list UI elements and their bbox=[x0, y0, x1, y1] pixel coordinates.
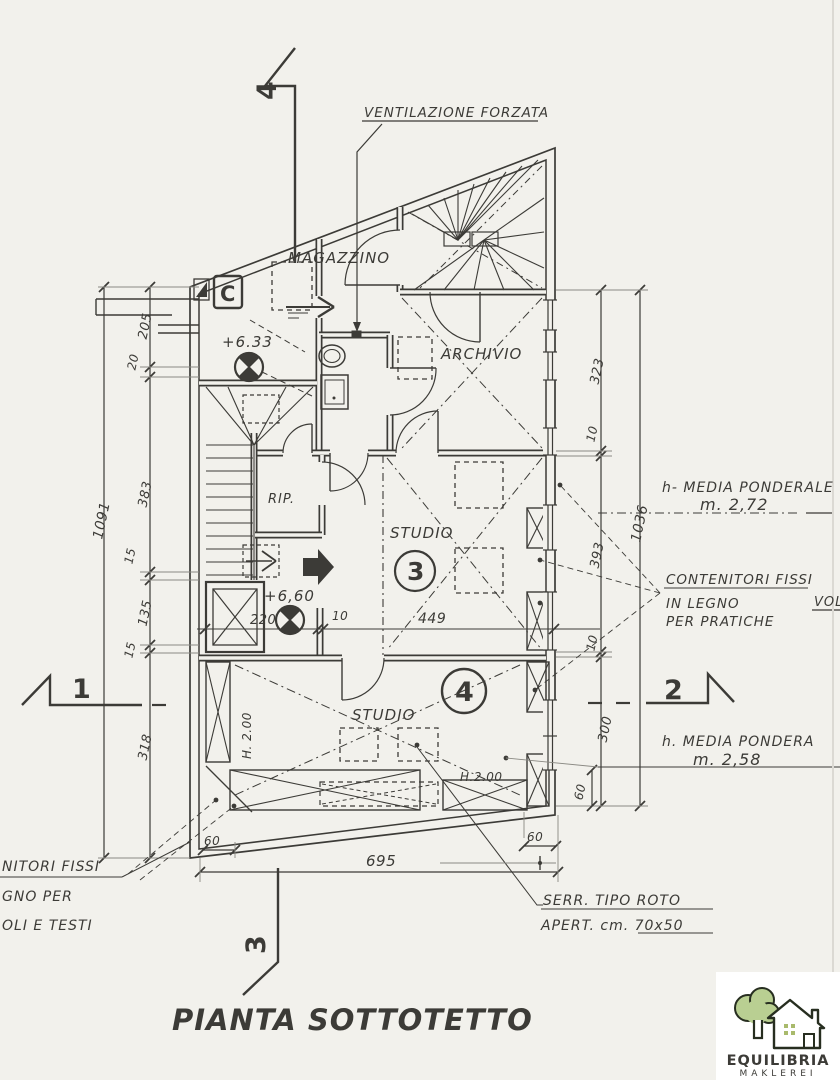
dim-right-323: 323 bbox=[588, 357, 608, 386]
annotation-skylight-1: SERR. TIPO ROTO bbox=[543, 893, 681, 909]
logo-block: EQUILIBRIA MAKLEREI bbox=[716, 972, 840, 1080]
section-marker-2: 2 bbox=[664, 675, 683, 706]
dim-right-10a: 10 bbox=[583, 424, 600, 443]
room-label-rip: RIP. bbox=[268, 492, 295, 507]
dim-right-total: 1036 bbox=[628, 503, 651, 543]
room-label-studio-4: STUDIO bbox=[352, 706, 415, 724]
annotation-containers-1: CONTENITORI FISSI bbox=[666, 572, 813, 588]
logo-name: EQUILIBRIA bbox=[727, 1053, 830, 1069]
annotation-avg-height-upper-value: m. 2,72 bbox=[700, 495, 768, 514]
dim-left-15a: 15 bbox=[121, 546, 138, 565]
annotation-volume-clipped: VOL bbox=[814, 595, 840, 610]
dim-interior-220: 220 bbox=[250, 613, 276, 628]
height-label-right: H.2.00 bbox=[460, 770, 503, 784]
dim-right-offset-60: 60 bbox=[571, 782, 588, 801]
dim-interior-449: 449 bbox=[418, 611, 446, 627]
dim-left-205: 205 bbox=[136, 312, 156, 341]
dim-bottom-60-left: 60 bbox=[204, 834, 220, 848]
annotation-skylight-2: APERT. cm. 70x50 bbox=[540, 918, 684, 934]
annotation-containers-2: IN LEGNO bbox=[666, 596, 740, 612]
level-marker-lower-label: +6,60 bbox=[264, 587, 315, 605]
annotation-ventilation: VENTILAZIONE FORZATA bbox=[364, 105, 549, 121]
dim-right-10b: 10 bbox=[583, 633, 600, 652]
dim-left-135: 135 bbox=[136, 599, 156, 628]
dim-left-15b: 15 bbox=[121, 640, 138, 659]
dim-left-318: 318 bbox=[136, 733, 156, 762]
dim-right-393: 393 bbox=[588, 541, 608, 570]
dim-left-20: 20 bbox=[124, 352, 141, 371]
annotation-avg-height-lower-value: m. 2,58 bbox=[693, 750, 761, 769]
height-label-left: H. 2.00 bbox=[240, 712, 254, 759]
section-marker-1: 1 bbox=[72, 674, 91, 705]
level-marker-upper-label: +6.33 bbox=[222, 333, 273, 351]
dim-bottom-total: 695 bbox=[366, 852, 396, 870]
annotation-left-note-1: NITORI FISSI bbox=[2, 859, 100, 875]
text-layer: 4 1 2 3 MAGAZZINO ARCHIVIO RIP. STUDIO 3… bbox=[2, 81, 840, 1037]
dim-right-300: 300 bbox=[596, 715, 616, 744]
section-marker-3: 3 bbox=[241, 935, 272, 954]
floor-plan-drawing: 4 1 2 3 MAGAZZINO ARCHIVIO RIP. STUDIO 3… bbox=[0, 0, 840, 1080]
dim-bottom-60-right: 60 bbox=[527, 830, 543, 844]
room-number-3: 3 bbox=[407, 557, 424, 586]
room-label-magazzino: MAGAZZINO bbox=[288, 249, 390, 267]
dim-left-383: 383 bbox=[136, 480, 156, 509]
reference-letter-c: C bbox=[220, 282, 235, 306]
annotation-containers-3: PER PRATICHE bbox=[666, 614, 774, 630]
logo-subtitle: MAKLEREI bbox=[739, 1069, 816, 1079]
floor-plan-page: 4 1 2 3 MAGAZZINO ARCHIVIO RIP. STUDIO 3… bbox=[0, 0, 840, 1080]
annotation-left-note-2: GNO PER bbox=[2, 889, 73, 905]
dim-left-total: 1091 bbox=[90, 500, 113, 540]
dim-interior-10: 10 bbox=[332, 609, 348, 623]
section-marker-4: 4 bbox=[252, 81, 283, 100]
room-label-studio-3: STUDIO bbox=[390, 524, 453, 542]
annotation-avg-height-lower: h. MEDIA PONDERA bbox=[662, 734, 815, 750]
drawing-title: PIANTA SOTTOTETTO bbox=[172, 1003, 533, 1037]
room-number-4: 4 bbox=[455, 677, 474, 708]
annotation-left-note-3: OLI E TESTI bbox=[2, 918, 93, 934]
room-label-archivio: ARCHIVIO bbox=[440, 345, 522, 363]
annotation-avg-height-upper: h- MEDIA PONDERALE bbox=[662, 480, 834, 496]
